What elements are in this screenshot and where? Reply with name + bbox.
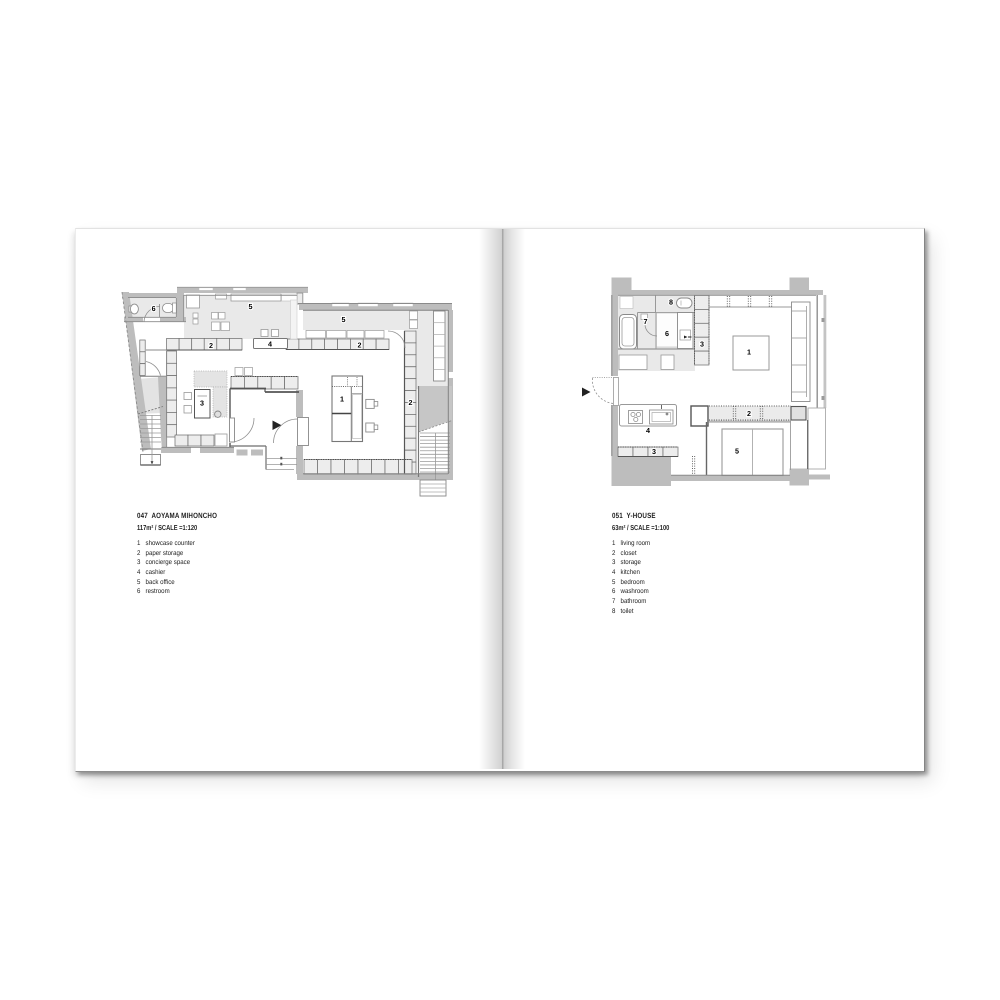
svg-text:6: 6 [152, 304, 156, 313]
svg-text:5: 5 [342, 315, 346, 324]
svg-text:3: 3 [652, 447, 656, 456]
svg-text:2: 2 [209, 341, 213, 350]
svg-text:3: 3 [200, 399, 204, 408]
svg-text:2: 2 [409, 398, 413, 407]
svg-text:7: 7 [644, 317, 648, 326]
svg-text:3: 3 [700, 340, 704, 349]
svg-text:1: 1 [340, 395, 344, 404]
svg-text:2: 2 [747, 409, 751, 418]
svg-text:2: 2 [358, 341, 362, 350]
svg-text:8: 8 [669, 298, 673, 307]
svg-text:6: 6 [665, 329, 669, 338]
svg-text:1: 1 [747, 348, 751, 357]
svg-text:4: 4 [268, 340, 272, 349]
svg-text:4: 4 [646, 426, 650, 435]
svg-text:5: 5 [735, 447, 739, 456]
svg-text:5: 5 [249, 302, 253, 311]
